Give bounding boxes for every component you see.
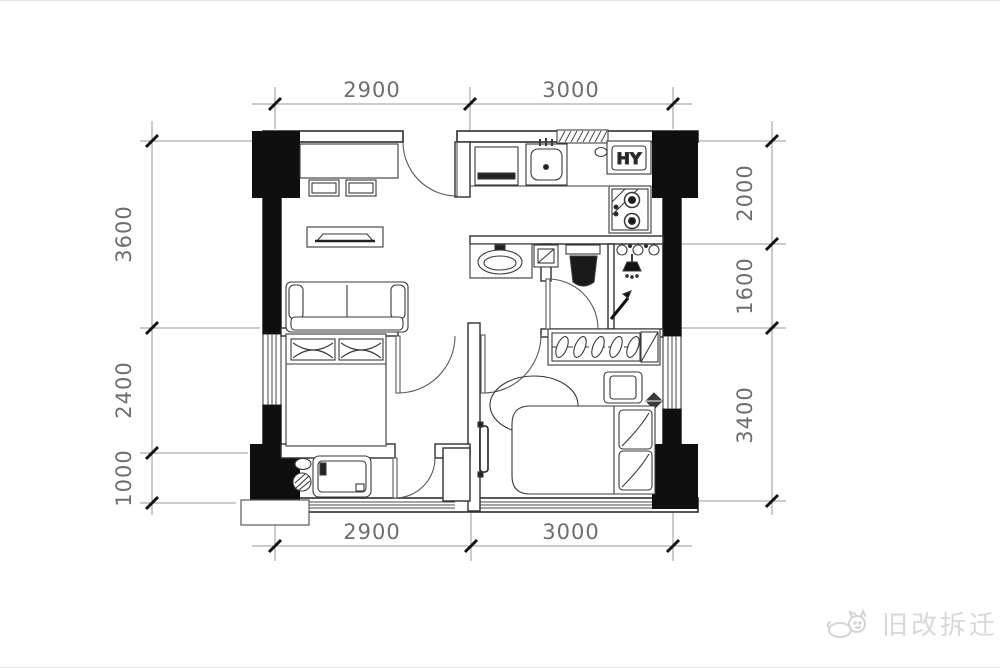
window-kitchen-hatched [557,130,608,143]
floor-plan-canvas: 2900 3000 2900 3000 3600 2400 1000 2000 … [0,0,1000,668]
window-right [663,336,681,409]
tv-console [307,227,383,247]
sofa [286,282,408,332]
kitchen: HY [470,138,651,233]
water-heater: HY [607,141,651,174]
dimension-label: 3000 [542,520,599,544]
soap-dish [595,148,607,157]
kitchen-sink [526,138,567,185]
living-dining-room [286,144,408,332]
basin-icon [295,459,311,470]
wardrobe [548,329,660,365]
column-bottom-right [652,444,698,509]
floor-drain-icon [293,473,311,491]
bed-2 [512,406,655,494]
wall-tv-icon [478,422,488,477]
window-left [263,334,281,405]
dimension-label: 3400 [733,386,757,443]
dimension-label: 2400 [112,361,136,418]
bedroom2-door [481,335,541,393]
wall-pier-balcony [443,448,470,501]
wall-kitchen-bath [470,236,663,244]
column-top-left [252,131,300,198]
dining-table [300,144,398,196]
dimension-label: 1000 [112,449,136,506]
nightstand [604,372,642,403]
gas-stove [609,186,651,233]
sofa-armrest [391,285,405,319]
exterior-ledge [241,500,309,525]
bedroom-1 [286,334,386,446]
sofa-armrest [289,285,303,319]
bath-cabinet [534,245,558,267]
floor-plan-drawing: 2900 3000 2900 3000 3600 2400 1000 2000 … [0,1,1000,667]
dimension-label: 2900 [343,520,400,544]
entrance-door [403,142,457,196]
shower-head-icon [623,254,641,278]
bedroom-2 [478,329,662,494]
washing-machine [313,456,371,497]
dimension-label: 3600 [112,205,136,262]
kitchen-cabinet [475,147,518,185]
shower-fixtures [617,245,659,256]
dimension-label: 2900 [343,78,400,102]
balcony [293,456,371,497]
water-heater-label: HY [617,149,642,168]
balcony-door [393,458,435,498]
dimension-label: 2000 [733,164,757,221]
watermark-text: 旧改拆迁 [882,605,998,642]
dimension-label: 1600 [733,257,757,314]
bed-1 [286,334,386,446]
dimension-label: 3000 [542,78,599,102]
bedroom1-door [396,336,455,393]
vanity-basin [470,244,532,278]
watermark-mascot-icon [826,606,874,642]
column-top-right [652,131,698,198]
bathroom-door [546,279,598,329]
toilet [566,245,600,286]
watermark: 旧改拆迁 [826,605,998,642]
